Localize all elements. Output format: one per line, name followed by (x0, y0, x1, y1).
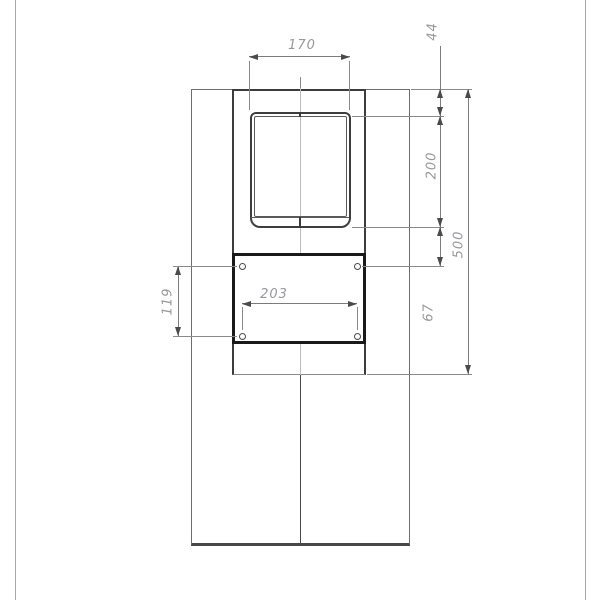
dim-overall-height-arrow-bottom (465, 365, 471, 374)
dim-hole-spacing-h-line (242, 303, 357, 304)
dim-hole-spacing-h-label: 203 (252, 287, 296, 302)
window-center-tick-top (299, 112, 301, 117)
drawing-sheet: 170 44 200 67 500 203 119 (0, 0, 600, 600)
dim-hole-spacing-h-ext-left (242, 307, 243, 330)
dim-top-offset-label: 44 (426, 10, 441, 54)
dim-hole-offset-arrow-bottom (437, 257, 443, 266)
dim-hole-spacing-v-ext-bottom (173, 336, 237, 337)
dim-overall-height-line (468, 89, 469, 374)
ext-hole-row-top (362, 266, 444, 267)
dim-top-offset-arrow-bottom (437, 107, 443, 116)
dim-window-height-line (440, 116, 441, 227)
dim-top-offset-line (440, 46, 441, 116)
dim-hole-offset-arrow-top (437, 227, 443, 236)
dim-overall-height-arrow-top (465, 89, 471, 98)
dim-window-height-arrow-bottom (437, 218, 443, 227)
mounting-hole-bottom-left (239, 333, 246, 340)
dim-window-width-ext-right (349, 61, 350, 110)
dim-hole-spacing-v-label: 119 (161, 280, 176, 324)
dim-window-width-arrow-right (341, 54, 350, 60)
dim-window-width-ext-left (249, 61, 250, 110)
dim-hole-spacing-h-ext-right (357, 307, 358, 330)
ext-window-bottom (352, 227, 444, 228)
dim-overall-height-label: 500 (452, 223, 467, 267)
display-window-inner (254, 116, 347, 217)
dim-hole-spacing-v-ext-top (173, 266, 237, 267)
dim-window-width-arrow-left (249, 54, 258, 60)
mounting-hole-top-right (354, 263, 361, 270)
sheet-border-left (15, 0, 16, 600)
ext-window-top (352, 116, 444, 117)
sheet-border-right (585, 0, 586, 600)
mounting-hole-bottom-right (354, 333, 361, 340)
dim-hole-spacing-v-arrow-top (175, 266, 181, 275)
dim-window-height-label: 200 (425, 144, 440, 188)
dim-hole-offset-label: 67 (422, 291, 437, 335)
dim-window-height-arrow-top (437, 116, 443, 125)
pedestal-split-line (300, 375, 301, 545)
dim-window-width-label: 170 (280, 38, 324, 53)
dim-top-offset-arrow-top (437, 89, 443, 98)
dim-hole-spacing-h-arrow-right (348, 301, 357, 307)
dim-hole-spacing-h-arrow-left (242, 301, 251, 307)
window-center-tick-bottom (299, 217, 301, 228)
dim-window-width-line (249, 56, 350, 57)
dim-window-width-center-tick (300, 77, 301, 88)
ext-panel-bottom (367, 374, 472, 375)
mounting-hole-top-left (239, 263, 246, 270)
dim-hole-spacing-v-arrow-bottom (175, 327, 181, 336)
dim-hole-spacing-v-line (178, 266, 179, 336)
